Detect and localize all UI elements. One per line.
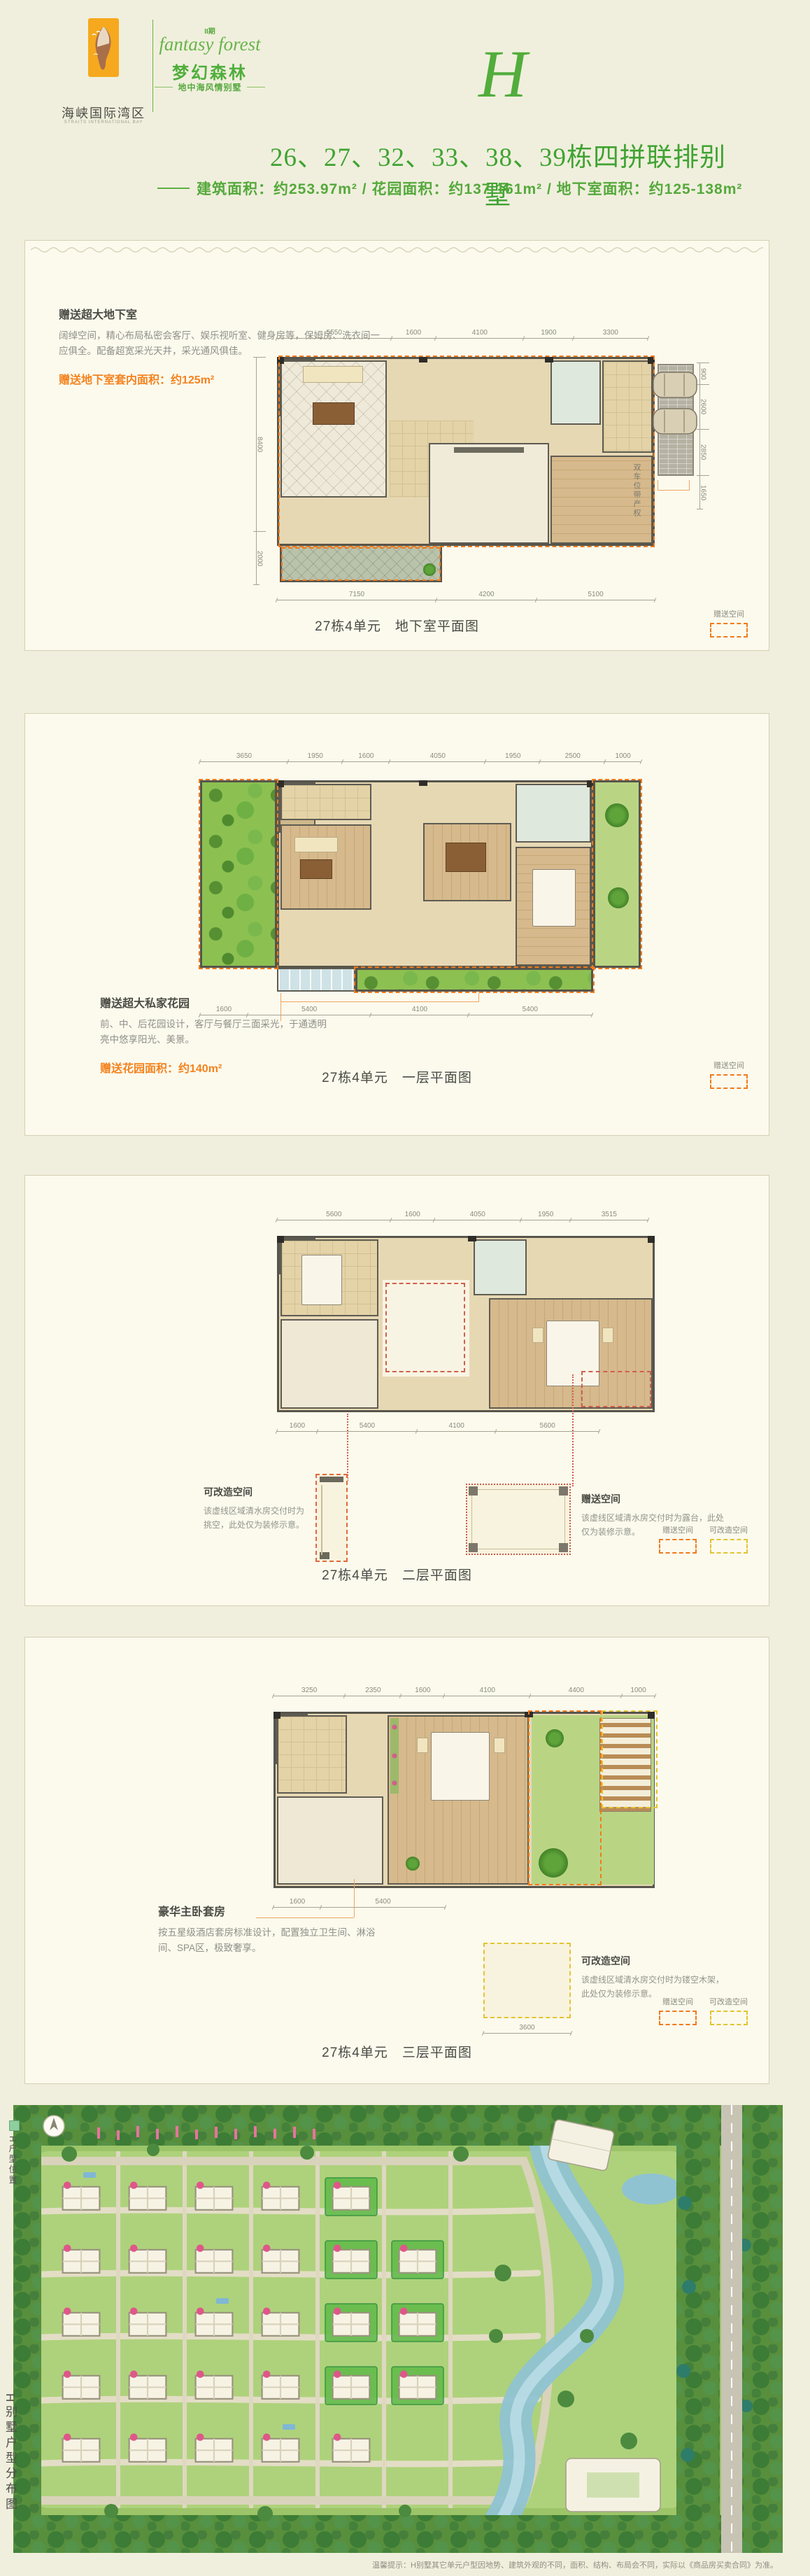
dining-room [423, 823, 511, 901]
second-floor-plan: 56001600405019503515 [235, 1204, 725, 1456]
area-subtitle: 建筑面积：约253.97m² / 花园面积：约137-161m² / 地下室面积… [157, 178, 773, 199]
legend-swatch [710, 2011, 748, 2025]
legend-item: 可改造空间 [709, 1524, 748, 1554]
dim-label: 4100 [444, 1687, 530, 1698]
plan-caption: 27栋4单元 二层平面图 [25, 1565, 769, 1584]
site-map [13, 2105, 783, 2553]
dim-label: 4100 [436, 330, 525, 340]
page-title: 26、27、32、33、38、39栋四拼联排别墅 [265, 136, 731, 211]
dims-right: 900260028501650 [697, 363, 709, 509]
dim-label: 4100 [417, 1423, 496, 1433]
section-first-floor: 3650195016004050195025001000 [24, 713, 769, 1136]
project-name-cn: 梦幻森林 [161, 59, 259, 83]
utility-room [602, 360, 653, 453]
inset-connector [347, 1414, 348, 1481]
dims-top: 55501600410019003300 [277, 329, 648, 340]
suite-note: 豪华主卧套房 按五星级酒店套房标准设计，配置独立卫生间、淋浴间、SPA区，极致奢… [158, 1902, 389, 1957]
bathroom [550, 360, 601, 425]
bathroom [474, 1239, 527, 1295]
plan-legend: 赠送空间 [710, 1060, 748, 1089]
brochure-page: 海峡国际湾区 STRAITS INTERNATIONAL BAY II期 fan… [0, 0, 810, 2576]
plan-legend: 赠送空间 可改造空间 [659, 1524, 748, 1554]
site-map-illustration [13, 2105, 783, 2553]
annotation-title: 可改造空间 [581, 1954, 728, 1968]
dim-label: 1600 [277, 1423, 318, 1433]
kitchen [280, 784, 371, 820]
media-room [429, 443, 549, 544]
plant-icon [423, 563, 436, 576]
note-title: 豪华主卧套房 [158, 1902, 389, 1919]
car-icon [652, 369, 698, 400]
gift-terrace-outline [581, 1371, 651, 1407]
convertible-void-outline [385, 1283, 465, 1372]
convertible-annotation: 可改造空间 该虚线区域清水房交付时为挑空，此处仅为装修示意。 [204, 1485, 310, 1533]
legend-item: 可改造空间 [709, 1996, 748, 2025]
dims-bottom: 1600540041005600 [277, 1422, 599, 1433]
sofa [303, 366, 363, 383]
second-floor-outline [277, 1236, 655, 1412]
dims-top: 56001600405019503515 [277, 1211, 648, 1222]
first-floor-plan: 3650195016004050195025001000 [176, 745, 665, 1025]
legend-item: 赠送空间 [710, 1060, 748, 1089]
master-suite [388, 1715, 529, 1885]
flower-box [390, 1718, 399, 1794]
dim-label: 5400 [318, 1423, 417, 1433]
section-third-floor: 325023501600410044001000 [24, 1637, 769, 2084]
dim-label: 4050 [390, 753, 485, 763]
legend-label: 赠送空间 [710, 1060, 748, 1071]
legend-label: 可改造空间 [709, 1996, 748, 2007]
plan-legend: 赠送空间 可改造空间 [659, 1996, 748, 2025]
dim-label: 1950 [521, 1211, 571, 1222]
legend-label: 赠送空间 [659, 1524, 697, 1535]
map-legend-swatch [9, 2120, 20, 2131]
legend-swatch [710, 1074, 748, 1089]
legend-item: 赠送空间 [710, 608, 748, 638]
dim-label: 900 [697, 363, 709, 384]
brand-name-en: STRAITS INTERNATIONAL BAY [59, 120, 148, 125]
basement-outline [277, 357, 655, 546]
dim-label: 5600 [277, 1211, 391, 1222]
basement-floor-plan: 55501600410019003300 84002000 9002600285… [235, 323, 739, 533]
dim-label: 4100 [371, 1006, 468, 1017]
car-icon [652, 406, 698, 437]
car-callout-line [658, 480, 690, 491]
third-floor-plan: 325023501600410044001000 [235, 1680, 725, 1931]
dim-label: 1600 [401, 1687, 444, 1698]
tagline-dash-right [247, 87, 265, 87]
dims-left: 84002000 [253, 357, 266, 585]
bedroom [516, 847, 591, 966]
disclaimer-text: 温馨提示：H别墅其它单元户型因地势、建筑外观的不同，面积、结构、布局会不同，实际… [372, 2559, 778, 2570]
dim-label: 3515 [571, 1211, 648, 1222]
annotation-title: 可改造空间 [204, 1485, 310, 1499]
master-bathroom [277, 1715, 347, 1794]
note-body: 按五星级酒店套房标准设计，配置独立卫生间、淋浴间、SPA区，极致奢享。 [158, 1925, 389, 1957]
dim-label: 1900 [524, 330, 574, 340]
dim-label: 2500 [540, 753, 605, 763]
plan-legend: 赠送空间 [710, 608, 748, 638]
legend-label: 可改造空间 [709, 1524, 748, 1535]
dim-label: 1650 [697, 475, 709, 509]
legend-label: 赠送空间 [710, 608, 748, 619]
first-floor-outline [277, 780, 593, 968]
dims-top: 325023501600410044001000 [273, 1687, 655, 1698]
dim-label: 2000 [253, 531, 266, 585]
plan-caption: 27栋4单元 一层平面图 [25, 1067, 769, 1086]
plan-caption: 27栋4单元 三层平面图 [25, 2042, 769, 2061]
inset-dim: 3600 [483, 2024, 571, 2035]
dim-label: 4050 [434, 1211, 521, 1222]
table [313, 402, 355, 425]
dim-label: 7150 [277, 591, 436, 602]
legend-swatch [710, 1539, 748, 1554]
dims-bottom: 715042005100 [277, 591, 655, 602]
cloakroom [277, 1796, 383, 1885]
legend-swatch [659, 2011, 697, 2025]
dim-label: 5100 [537, 591, 655, 602]
screen [454, 447, 525, 453]
unit-type-letter: H [478, 41, 527, 108]
sunken-courtyard [280, 546, 442, 582]
legend-item: 赠送空间 [659, 1996, 697, 2025]
living-room [280, 824, 371, 910]
glass-canopy [277, 968, 355, 992]
dim-label: 3250 [273, 1687, 345, 1698]
section-basement: 赠送超大地下室 阔绰空间，精心布局私密会客厅、娱乐视听室、健身房等，保姆房、洗衣… [24, 240, 769, 651]
dim-label: 5400 [469, 1006, 592, 1017]
subtitle-dash [157, 188, 190, 189]
legend-item: 赠送空间 [659, 1524, 697, 1554]
dim-label: 3650 [200, 753, 288, 763]
bathroom [516, 784, 591, 843]
legend-label: 赠送空间 [659, 1996, 697, 2007]
tagline-dash-left [155, 87, 173, 87]
dim-label: 1600 [391, 1211, 434, 1222]
bedroom-2 [280, 1239, 378, 1316]
dims-top: 3650195016004050195025001000 [200, 752, 641, 763]
legend-swatch [710, 623, 748, 638]
garden-note: 赠送超大私家花园 前、中、后花园设计，客厅与餐厅三面采光，于通透明亮中悠享阳光、… [100, 994, 331, 1076]
dim-label: 2850 [697, 429, 709, 476]
terrace-detail-inset [466, 1484, 571, 1555]
dim-label: 4400 [530, 1687, 622, 1698]
inset-connector [572, 1374, 574, 1486]
project-script-name: fantasy forest [152, 34, 267, 55]
brand-name-cn: 海峡国际湾区 [59, 104, 148, 122]
section-second-floor: 56001600405019503515 [24, 1175, 769, 1606]
annotation-body: 该虚线区域清水房交付时为挑空，此处仅为装修示意。 [204, 1504, 310, 1533]
dim-label: 1600 [392, 330, 436, 340]
convertible-annotation: 可改造空间 该虚线区域清水房交付时为镂空木架，此处仅为装修示意。 [581, 1954, 728, 2001]
front-garden [200, 780, 277, 968]
dim-label: 1600 [343, 753, 390, 763]
annotation-title: 赠送空间 [581, 1492, 725, 1506]
note-title: 赠送超大私家花园 [100, 994, 331, 1011]
legend-swatch [659, 1539, 697, 1554]
pergola-detail-inset [483, 1943, 571, 2018]
dim-label: 1950 [485, 753, 540, 763]
rear-garden [355, 968, 593, 992]
dim-label: 1000 [605, 753, 641, 763]
side-garden [593, 780, 641, 968]
dim-label: 1950 [288, 753, 343, 763]
note-body: 前、中、后花园设计，客厅与餐厅三面采光，于通透明亮中悠享阳光、美景。 [100, 1017, 331, 1048]
tagline-text: 地中海风情别墅 [178, 81, 241, 93]
dim-label: 2350 [345, 1687, 401, 1698]
map-title: H别墅户型分布图 [1, 2393, 19, 2513]
dim-label: 4200 [436, 591, 537, 602]
dim-label: 5600 [496, 1423, 599, 1433]
dim-label: 2600 [697, 384, 709, 428]
convertible-space-outline [602, 1710, 658, 1808]
subtitle-text: 建筑面积：约253.97m² / 花园面积：约137-161m² / 地下室面积… [197, 178, 742, 199]
dim-label: 3300 [574, 330, 648, 340]
dim-label: 1000 [622, 1687, 655, 1698]
note-title: 赠送超大地下室 [59, 305, 388, 322]
brand-logo-icon [88, 18, 119, 77]
third-floor-outline [273, 1712, 655, 1888]
dim-label: 5550 [277, 330, 392, 340]
dim-label: 3600 [483, 2025, 571, 2035]
parking-side-note: 双车位带产权 [631, 463, 642, 518]
study-room [280, 1319, 378, 1409]
map-legend-label: H户型位置 [7, 2136, 19, 2186]
dim-label: 8400 [253, 357, 266, 531]
wave-decoration [31, 244, 763, 253]
void-detail-inset [315, 1474, 348, 1562]
plan-caption: 27栋4单元 地下室平面图 [25, 616, 769, 635]
project-tagline: 地中海风情别墅 [140, 81, 280, 93]
